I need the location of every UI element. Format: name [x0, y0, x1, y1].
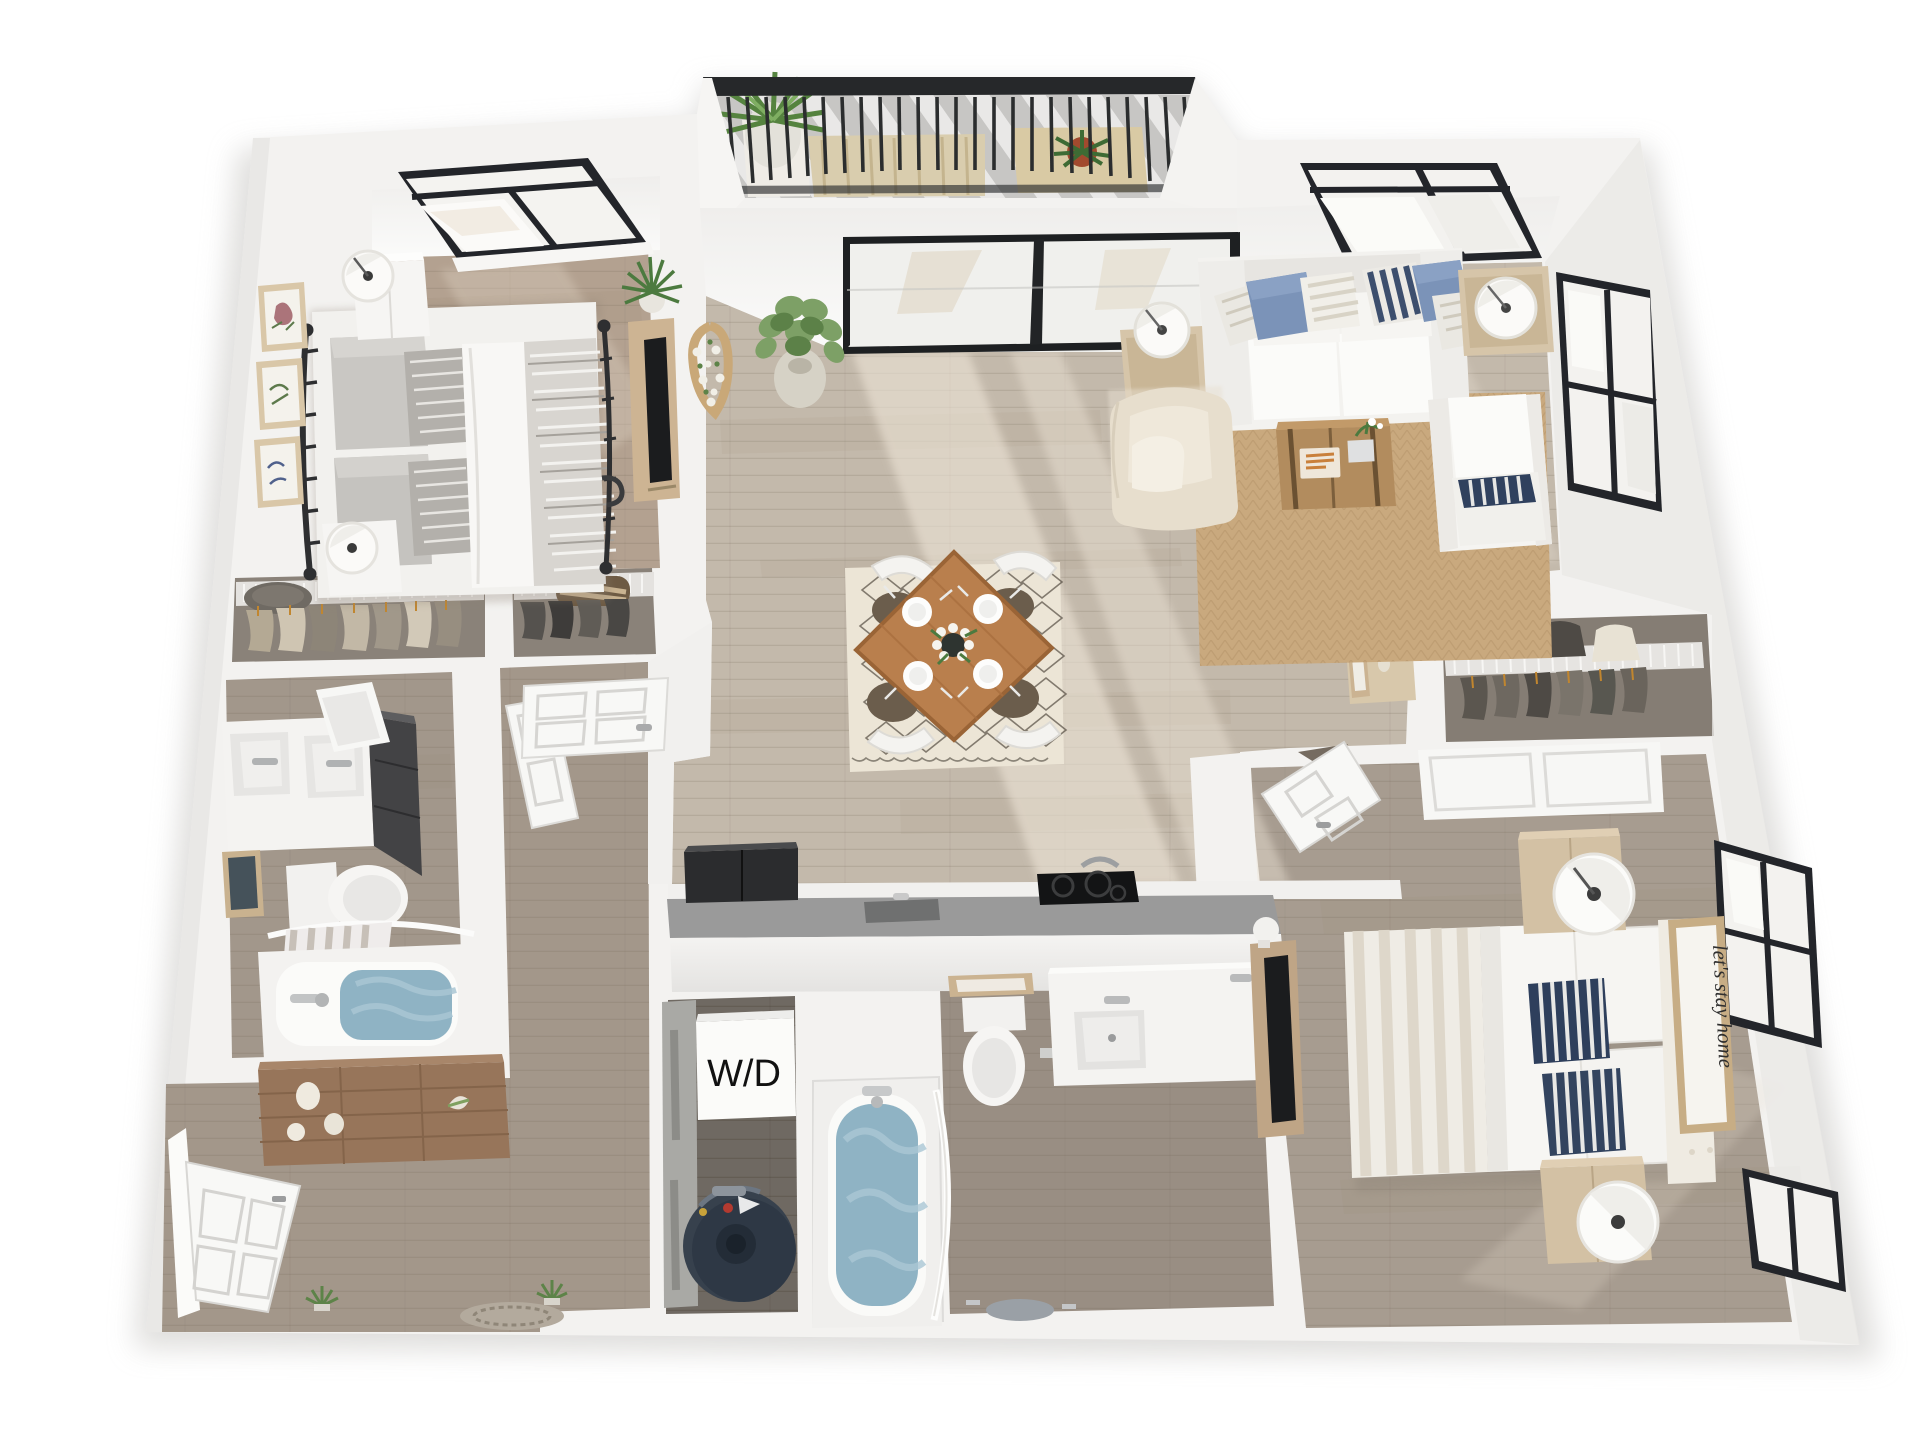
svg-text:W/D: W/D: [707, 1053, 781, 1095]
